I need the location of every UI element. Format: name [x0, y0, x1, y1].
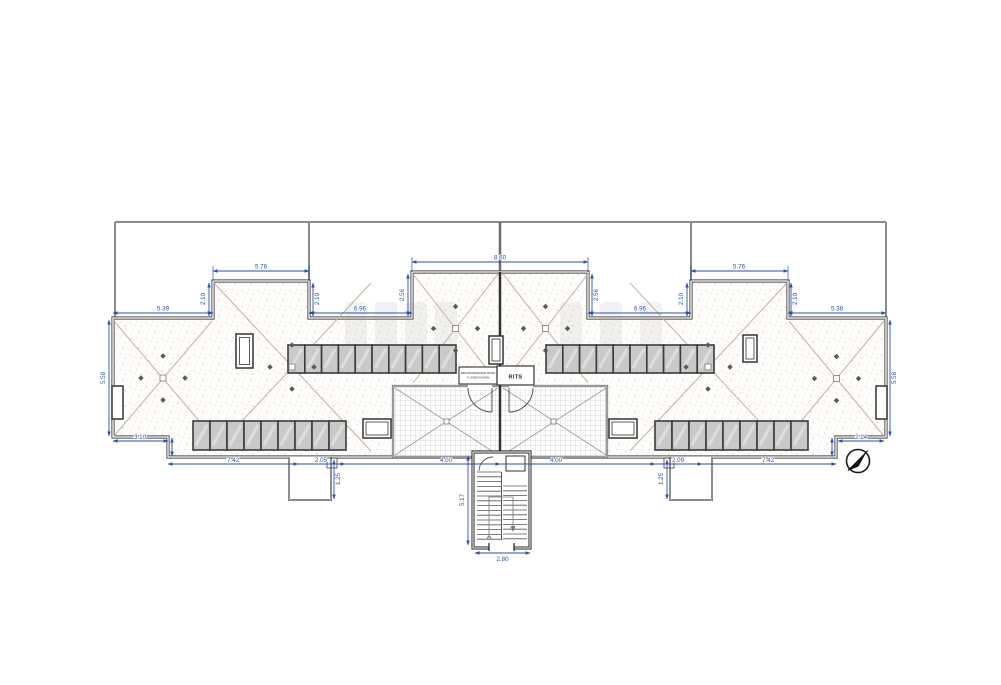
hip-center-node — [543, 326, 549, 332]
rits-label: RITS — [509, 375, 523, 381]
dim-center-block-width: 8.60 — [412, 255, 588, 263]
hip-center-node — [453, 326, 459, 332]
hip-center-node — [705, 364, 711, 370]
dim-left-block-depth-left: 2.10 — [200, 283, 209, 316]
dim-label: 5.76 — [733, 264, 746, 271]
dim-label: 5.38 — [831, 306, 844, 313]
dim-right-block-depth-right: 2.10 — [791, 283, 799, 316]
rits-box: RITS — [497, 366, 534, 385]
dim-label: 6.96 — [634, 306, 647, 313]
dim-stair-height: 5.17 — [459, 456, 468, 545]
dim-label: 3.10 — [134, 434, 147, 441]
stair-core — [473, 452, 530, 552]
dim-left-block-width: 5.76 — [213, 264, 309, 272]
right-wall-vent — [876, 386, 887, 419]
terrace-center-node — [551, 419, 556, 424]
dim-label: 4.00 — [440, 457, 453, 464]
dim-label: 2.10 — [678, 292, 685, 305]
dim-label: 7.42 — [762, 457, 775, 464]
dim-label: 2.14 — [855, 434, 868, 441]
dim-right-block-depth-left: 2.10 — [678, 283, 687, 316]
note-box: BRANDWERENDE WAND TUSSEN DAKEN — [459, 367, 497, 384]
dim-label: 2.80 — [496, 556, 509, 563]
dim-label: 2.56 — [593, 288, 600, 301]
dim-left-box-depth: 1.25 — [334, 460, 342, 499]
dim-label: 2.10 — [792, 292, 799, 305]
dim-top-right-span: 5.38 — [788, 306, 886, 314]
floor-plan-page: BRANDWERENDE WAND TUSSEN DAKEN RITS 5.39… — [0, 0, 1001, 680]
dim-label: 8.60 — [494, 255, 507, 262]
floor-plan-svg: BRANDWERENDE WAND TUSSEN DAKEN RITS 5.39… — [0, 0, 1001, 680]
dim-left-block-depth-right: 2.10 — [313, 283, 321, 316]
dim-right-block-width: 5.76 — [691, 264, 788, 272]
dim-right-wing-height: 5.58 — [890, 320, 898, 436]
dim-label: 5.17 — [459, 493, 466, 506]
dim-right-box-depth: 1.25 — [658, 460, 667, 499]
stair-landing-box — [506, 456, 525, 471]
dim-label: 5.39 — [157, 306, 170, 313]
dim-label: 4.00 — [550, 457, 563, 464]
dim-center-block-depth-right: 2.56 — [592, 274, 600, 316]
left-wall-vent — [112, 386, 123, 419]
dim-top-left-span: 5.39 — [113, 306, 213, 314]
dim-label: 5.76 — [255, 264, 268, 271]
dim-label: 2.09 — [672, 457, 685, 464]
note-text-line1: BRANDWERENDE WAND — [461, 371, 495, 375]
terrace-center-node — [444, 419, 449, 424]
note-text-line2: TUSSEN DAKEN — [467, 376, 490, 380]
hip-center-node — [289, 364, 295, 370]
hip-center-node — [160, 375, 166, 381]
north-arrow-icon — [847, 450, 870, 473]
dim-label: 2.56 — [399, 288, 406, 301]
dim-stair-width: 2.80 — [475, 553, 530, 563]
dim-label: 5.58 — [891, 371, 898, 384]
dim-left-wing-height: 5.58 — [100, 320, 109, 436]
dim-label: 1.25 — [658, 472, 665, 485]
dim-label: 1.25 — [335, 472, 342, 485]
dim-label: 2.05 — [315, 457, 328, 464]
hip-center-node — [834, 376, 840, 382]
dim-label: 7.42 — [227, 457, 240, 464]
dim-label: 6.96 — [354, 306, 367, 313]
dim-label: 2.10 — [200, 292, 207, 305]
dim-label: 2.10 — [314, 292, 321, 305]
dim-label: 5.58 — [100, 371, 107, 384]
stair-bottom-door — [489, 544, 514, 552]
